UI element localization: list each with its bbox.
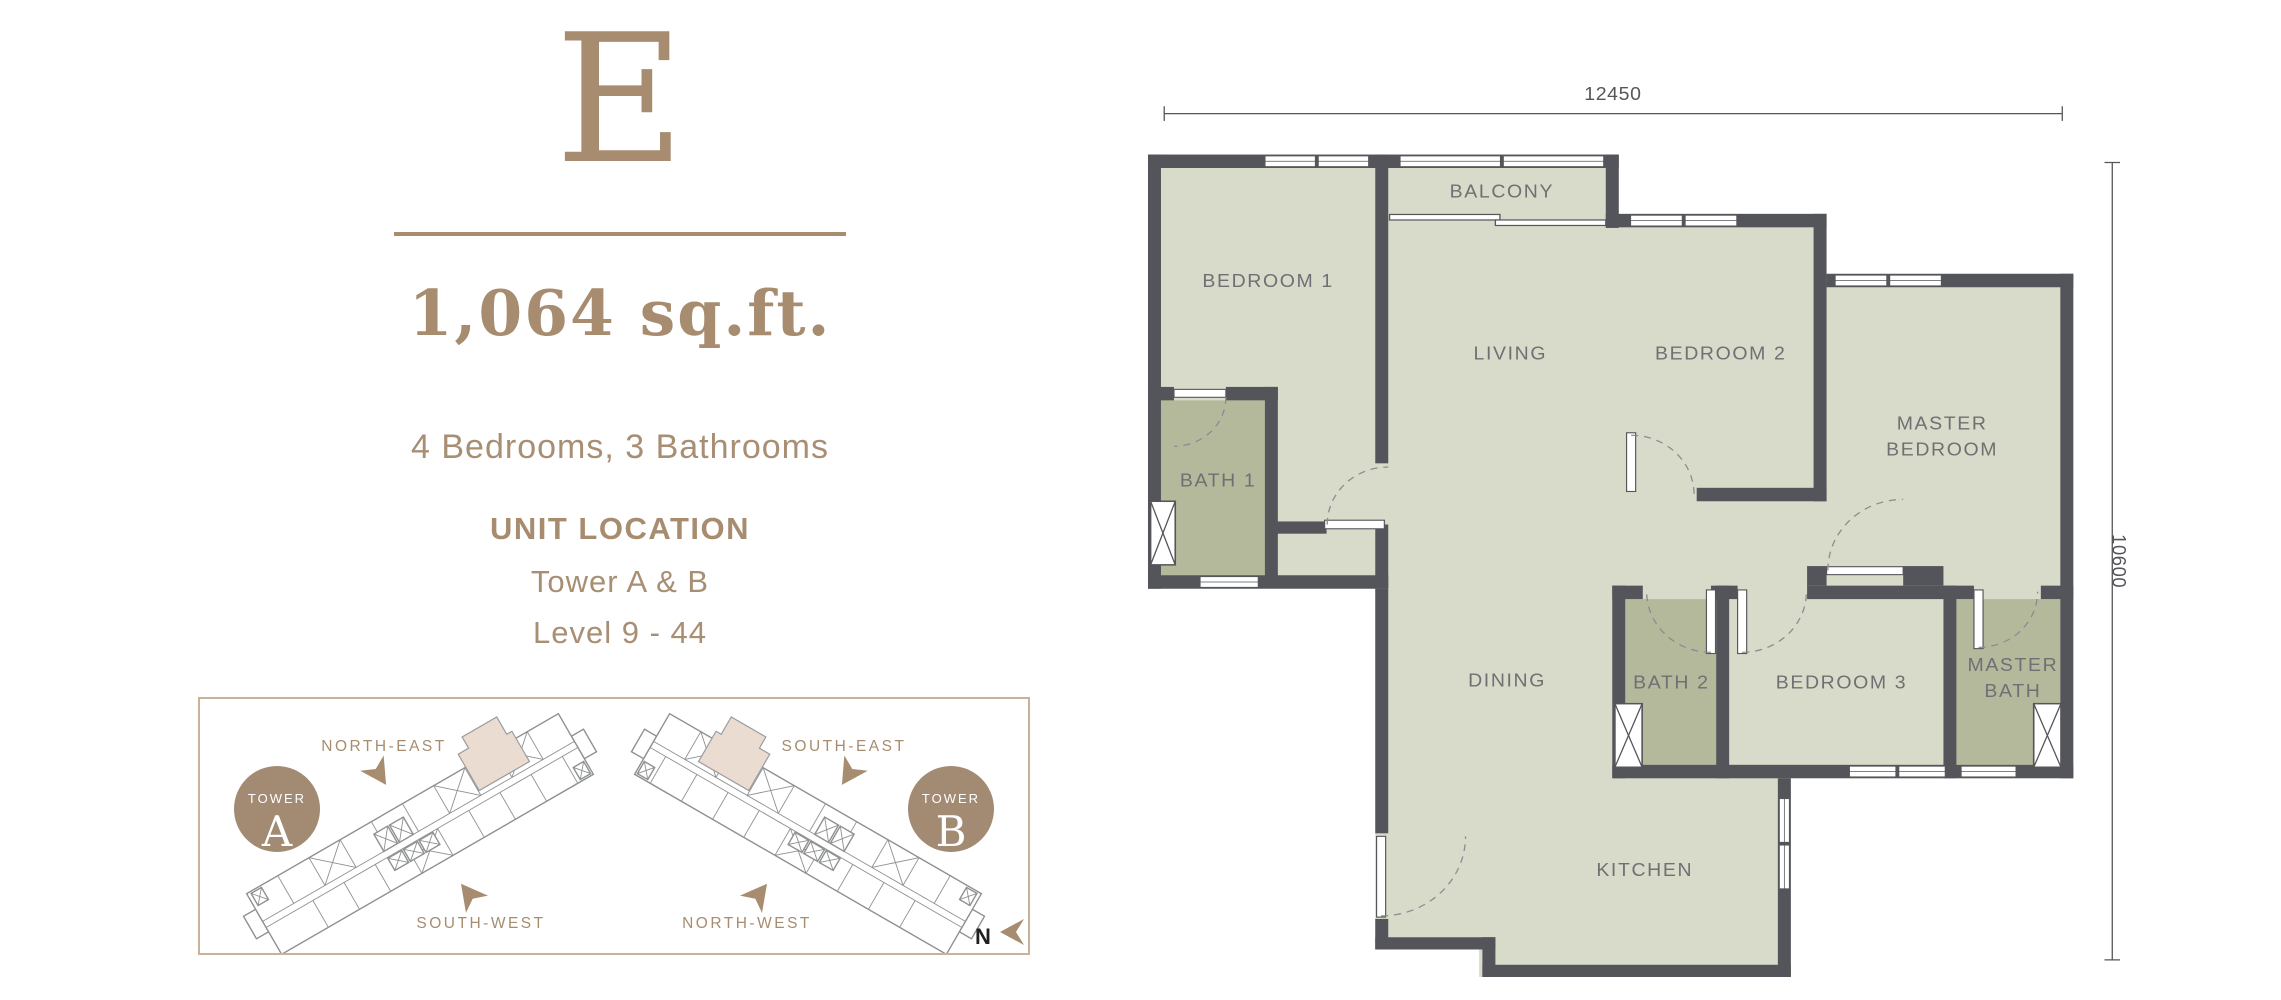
tower-b-badge-letter: B (936, 807, 967, 856)
tower-a-badge-word: TOWER (248, 791, 306, 806)
tower-b-direction-bottom: NORTH-WEST (682, 915, 812, 932)
divider-line (394, 232, 846, 236)
unit-type-letter: E (200, 14, 1040, 186)
dimension-height-value: 10600 (2107, 534, 2129, 588)
room-label-master-bedroom-line1: MASTER (1897, 414, 1988, 434)
room-label-bedroom2: BEDROOM 2 (1655, 344, 1786, 364)
room-label-bath1: BATH 1 (1180, 471, 1256, 491)
north-compass-icon: N (975, 919, 1024, 949)
tower-b-direction-top: SOUTH-EAST (782, 738, 907, 755)
pointer-icon (830, 755, 868, 792)
room-label-balcony: BALCONY (1450, 182, 1554, 202)
room-label-living: LIVING (1474, 344, 1548, 364)
unit-info-panel: E 1,064 sq.ft. 4 Bedrooms, 3 Bathrooms U… (200, 0, 1040, 651)
room-label-bedroom1: BEDROOM 1 (1202, 272, 1333, 292)
tower-a-badge-letter: A (261, 807, 293, 856)
room-label-master-bath-line2: BATH (1984, 681, 2041, 701)
pointer-icon (450, 875, 488, 913)
room-label-dining: DINING (1468, 671, 1546, 691)
dimension-width (1164, 106, 2062, 121)
pointer-icon (360, 755, 398, 792)
unit-location-heading: UNIT LOCATION (200, 511, 1040, 547)
tower-a-badge: TOWER A (234, 766, 320, 856)
compass-n-label: N (975, 924, 991, 949)
tower-location-diagram: TOWER A TOWER B NORTH-EAST SOUTH-WEST SO… (200, 699, 1028, 953)
floorplan-panel: BEDROOM 1 BALCONY LIVING BEDROOM 2 MASTE… (1135, 72, 2135, 977)
tower-b-badge-word: TOWER (922, 791, 980, 806)
tower-a-direction-bottom: SOUTH-WEST (416, 915, 545, 932)
unit-location-levels: Level 9 - 44 (200, 615, 1040, 651)
tower-a-direction-top: NORTH-EAST (321, 738, 446, 755)
tower-b-badge: TOWER B (908, 766, 994, 856)
unit-location-towers: Tower A & B (200, 564, 1040, 600)
dimension-width-value: 12450 (1584, 85, 1641, 105)
floorplan-drawing: BEDROOM 1 BALCONY LIVING BEDROOM 2 MASTE… (1135, 72, 2135, 977)
pointer-icon (740, 875, 778, 913)
room-label-bedroom3: BEDROOM 3 (1776, 673, 1907, 693)
unit-area: 1,064 sq.ft. (200, 276, 1040, 350)
room-label-master-bedroom-line2: BEDROOM (1886, 440, 1998, 460)
room-label-kitchen: KITCHEN (1596, 861, 1693, 881)
unit-location-box: TOWER A TOWER B NORTH-EAST SOUTH-WEST SO… (198, 697, 1030, 955)
unit-config: 4 Bedrooms, 3 Bathrooms (200, 428, 1040, 467)
room-label-bath2: BATH 2 (1633, 673, 1709, 693)
floorplan-brochure-page: E 1,064 sq.ft. 4 Bedrooms, 3 Bathrooms U… (0, 0, 2281, 1000)
room-label-master-bath-line1: MASTER (1967, 656, 2058, 676)
